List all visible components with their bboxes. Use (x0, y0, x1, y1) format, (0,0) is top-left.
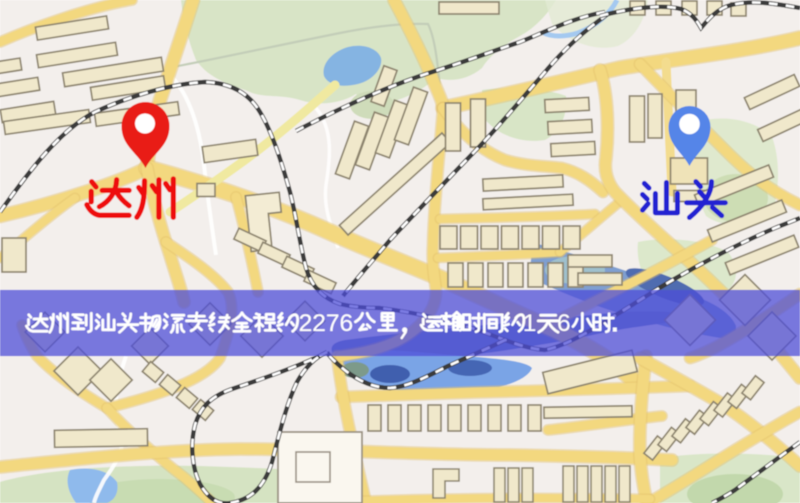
svg-text:2276: 2276 (299, 310, 354, 337)
svg-text:6: 6 (557, 310, 571, 337)
svg-text:1: 1 (523, 310, 537, 337)
